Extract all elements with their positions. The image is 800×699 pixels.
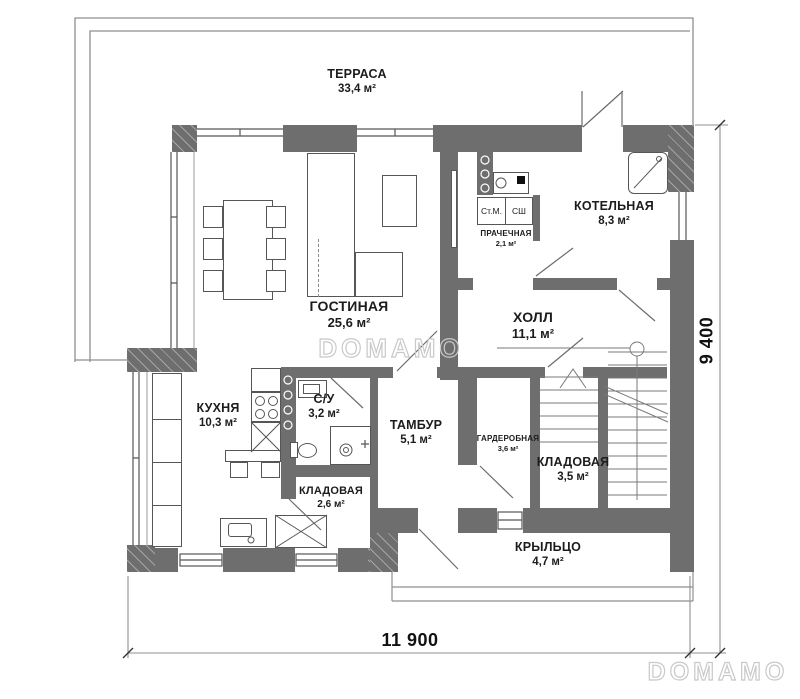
wall-boiler-bottom — [440, 278, 473, 290]
room-label-kitchen: КУХНЯ 10,3 м² — [158, 400, 278, 431]
room-label-porch: КРЫЛЬЦО 4,7 м² — [488, 539, 608, 570]
laundry-counter — [493, 172, 529, 194]
kitchen-island — [225, 450, 281, 462]
room-label-laundry: ПРАЧЕЧНАЯ 2,1 м² — [466, 229, 546, 249]
dimension-height: 9 400 — [697, 281, 718, 401]
stairs-newel — [630, 342, 644, 356]
room-label-boiler: КОТЕЛЬНАЯ 8,3 м² — [554, 198, 674, 229]
toilet-bowl — [298, 443, 317, 458]
wall-right — [670, 240, 694, 572]
wall-stairs-right — [598, 373, 608, 508]
wall-boiler-bottom — [657, 278, 670, 290]
toilet-tank — [290, 442, 298, 458]
cabinet — [307, 153, 355, 297]
sofa — [355, 252, 403, 297]
dimension-width: 11 900 — [330, 630, 490, 651]
wall-porch — [523, 508, 670, 533]
dryer-label: СШ — [512, 206, 526, 216]
wall-corner-hatched — [668, 125, 694, 192]
stove-strip — [477, 152, 493, 195]
room-label-terrace: ТЕРРАСА 33,4 м² — [297, 66, 417, 97]
sink-cabinet — [220, 518, 267, 547]
room-label-vestibule: ТАМБУР 5,1 м² — [356, 417, 476, 448]
counter-divider — [153, 505, 181, 506]
stairs-break-line — [604, 386, 668, 422]
wall-corner-hatched — [127, 545, 155, 572]
wall-corner-hatched — [370, 533, 398, 572]
chair — [203, 270, 223, 292]
wall-corner-hatched — [172, 125, 197, 152]
kitchen-cabinet — [251, 368, 281, 392]
boiler-unit — [628, 152, 668, 194]
wall-hall-bottom — [437, 367, 458, 378]
chair — [266, 270, 286, 292]
sink-basin — [228, 523, 252, 537]
washing-machine-box: Ст.М. — [477, 197, 506, 225]
room-label-wardrobe: ГАРДЕРОБНАЯ 3,6 м² — [463, 434, 553, 454]
room-label-living: ГОСТИНАЯ 25,6 м² — [289, 297, 409, 332]
wall-corner-hatched — [127, 348, 197, 372]
watermark-corner: DOMAMO — [643, 658, 793, 687]
wall-hall-bottom — [583, 367, 667, 378]
wall-porch — [370, 508, 418, 533]
wall — [283, 125, 357, 152]
wall-boiler-bottom — [533, 278, 617, 290]
stool — [230, 462, 248, 478]
watermark-center: DOMAMO — [316, 333, 466, 364]
stool — [261, 462, 280, 478]
dryer-box: СШ — [505, 197, 533, 225]
wall-bottom — [338, 548, 370, 572]
washing-machine-label: Ст.М. — [481, 206, 502, 216]
porch-steps — [392, 572, 693, 601]
appliance-x — [275, 515, 327, 548]
chair — [203, 206, 223, 228]
cabinet-dash-line — [318, 239, 319, 297]
wall-porch — [458, 508, 497, 533]
coffee-table — [382, 175, 417, 227]
room-label-storage-stairs: КЛАДОВАЯ 3,5 м² — [513, 454, 633, 485]
chair — [266, 238, 286, 260]
room-label-hall: ХОЛЛ 11,1 м² — [473, 308, 593, 343]
room-label-storage-kitchen: КЛАДОВАЯ 2,6 м² — [271, 484, 391, 511]
wall-bottom — [223, 548, 295, 572]
counter-divider — [153, 462, 181, 463]
chair — [266, 206, 286, 228]
wall-bath-storage — [281, 465, 378, 477]
chair — [203, 238, 223, 260]
floor-plan: Ст.М. СШ — [0, 0, 800, 699]
tv-panel — [451, 170, 457, 248]
